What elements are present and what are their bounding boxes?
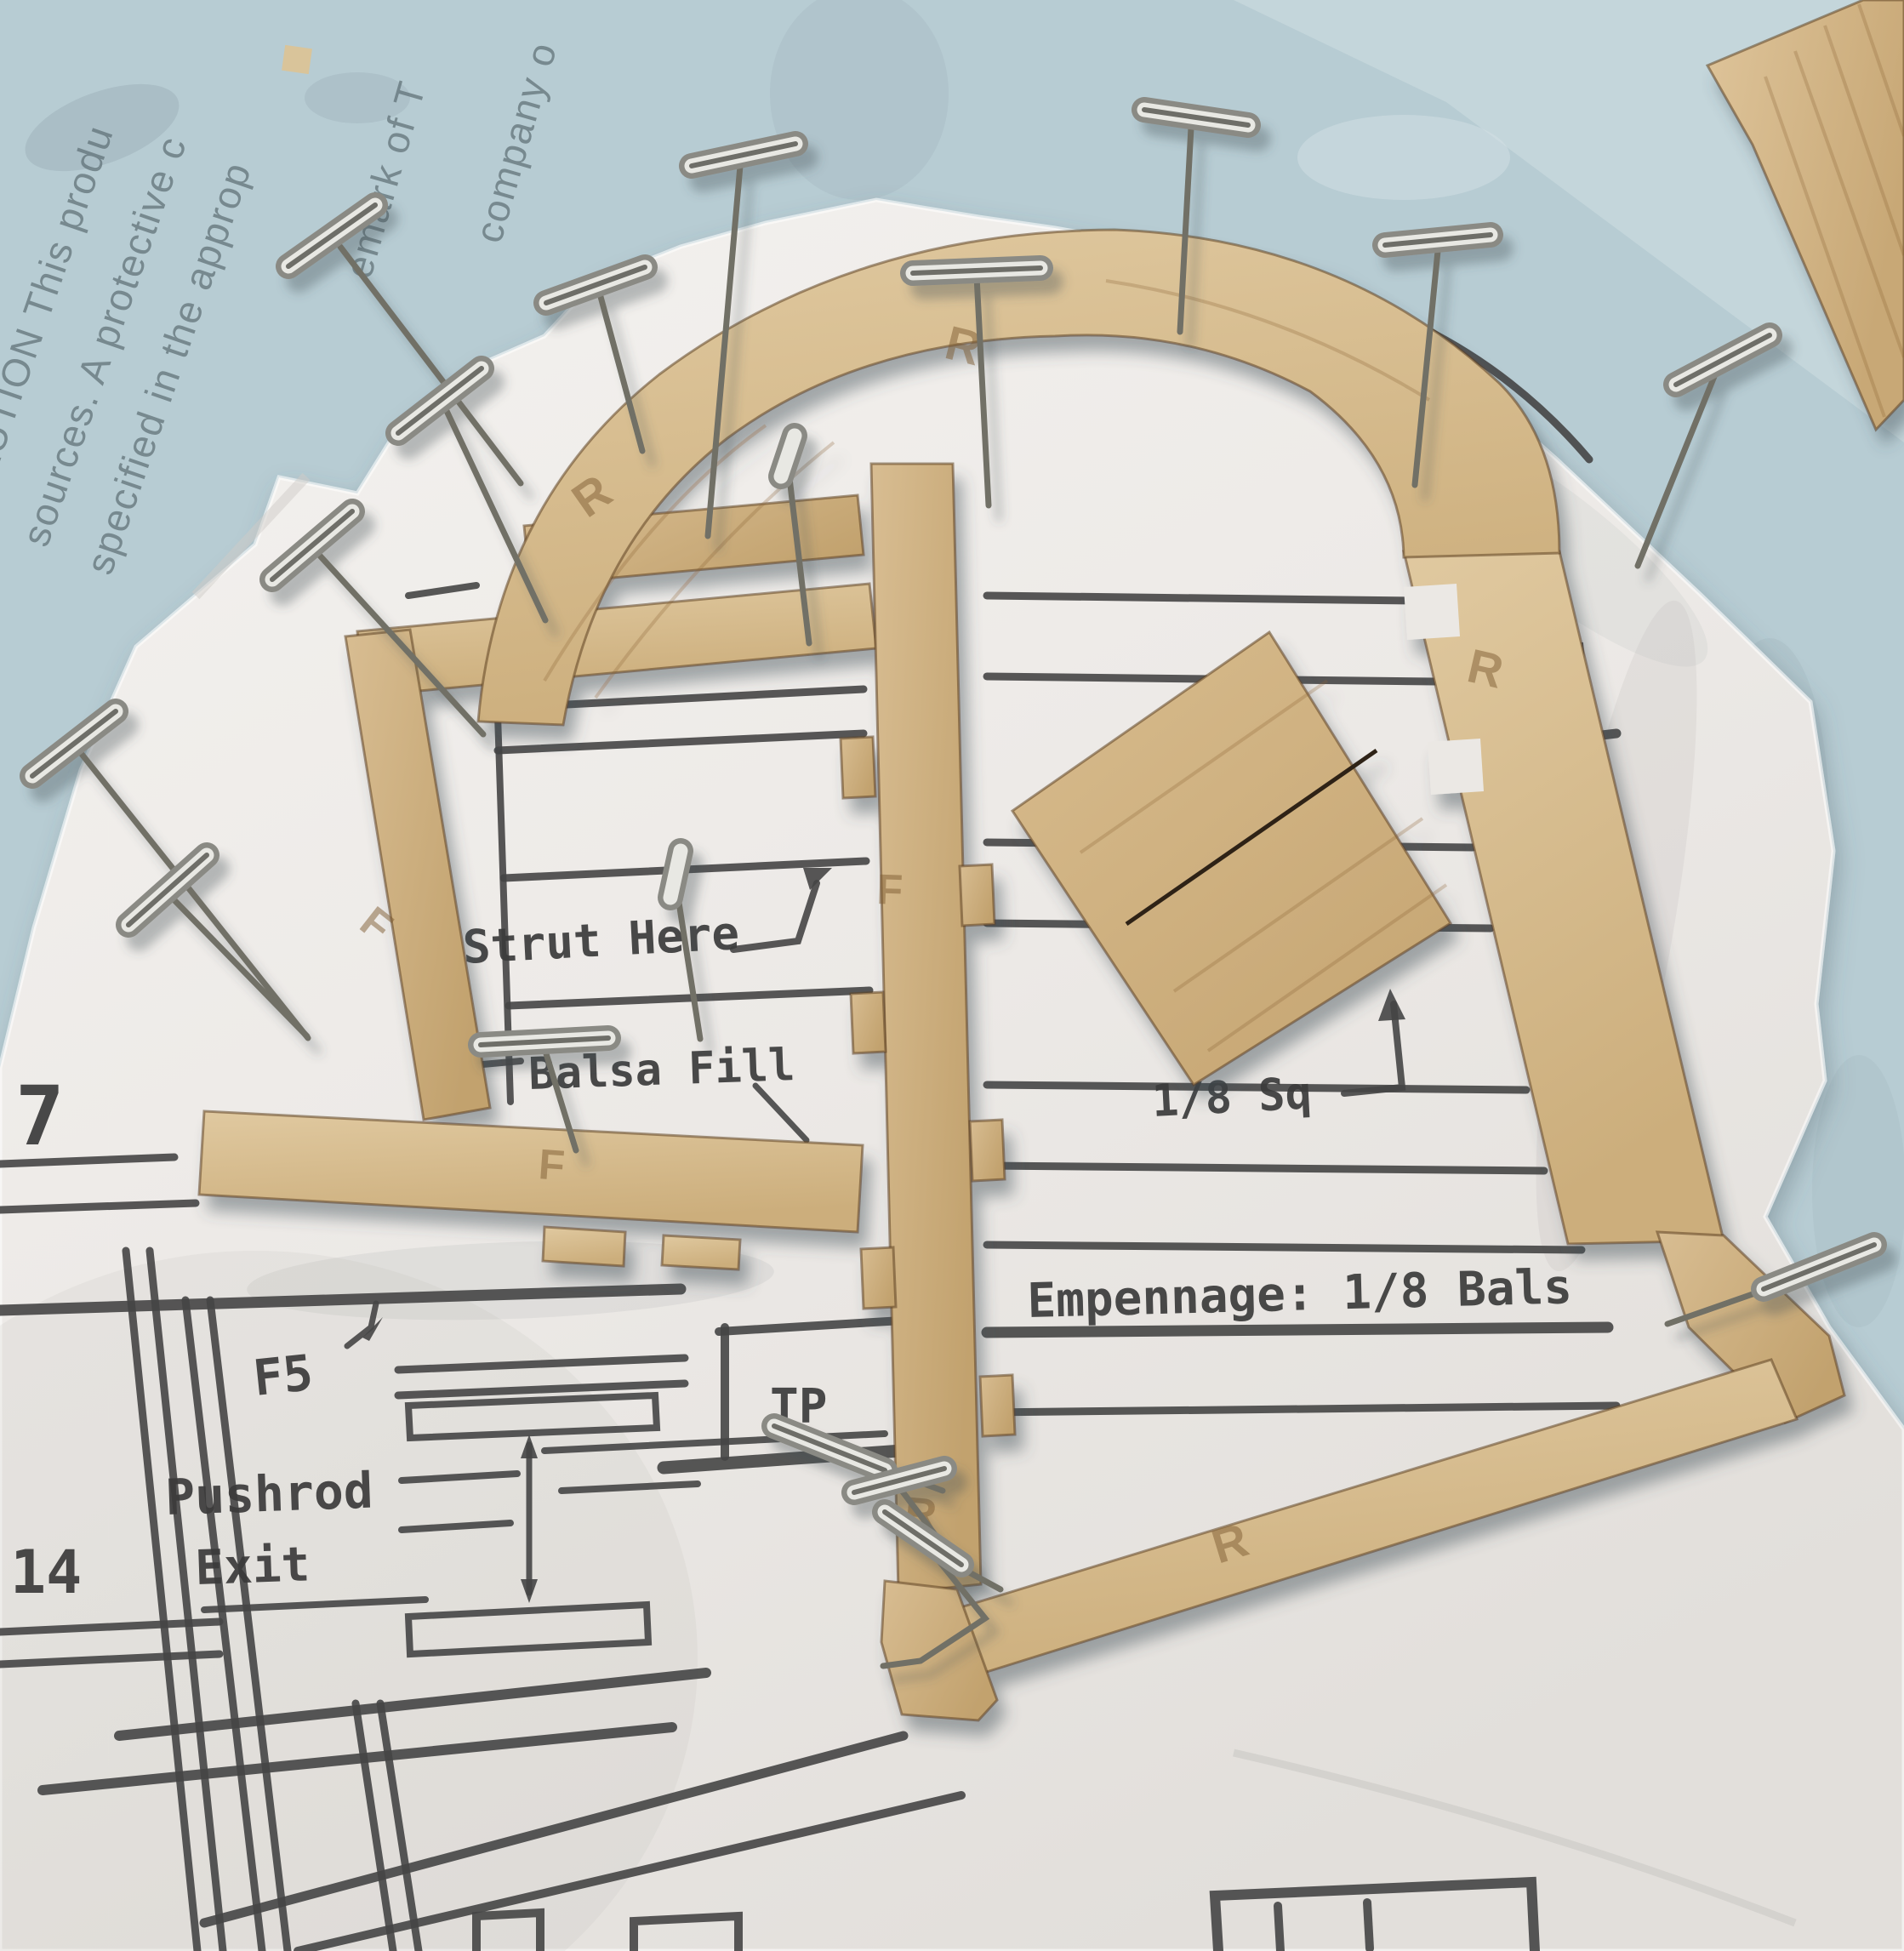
etched-f: F <box>537 1140 566 1189</box>
label-exit: Exit <box>194 1537 311 1596</box>
foam-speck <box>282 45 312 74</box>
spine-tab <box>960 864 995 926</box>
spine-tab <box>970 1120 1005 1181</box>
bottom-bar-tab <box>543 1227 625 1266</box>
spine-tab <box>851 992 886 1053</box>
label-one-eighth-sq: 1/8 Sq <box>1151 1068 1314 1127</box>
spine-tab <box>980 1375 1015 1436</box>
photo-canvas: CAUTION This produ sources. A protective… <box>0 0 1904 1951</box>
right-member-notch <box>1404 584 1460 640</box>
etched-f: F <box>876 865 904 914</box>
label-station-7: 7 <box>15 1069 65 1164</box>
label-station-14: 14 <box>10 1537 82 1607</box>
label-pushrod: Pushrod <box>164 1462 374 1526</box>
workbench-photo: CAUTION This produ sources. A protective… <box>0 0 1904 1951</box>
spine-tab <box>841 737 875 798</box>
label-f5: F5 <box>250 1343 316 1407</box>
right-member-notch <box>1428 739 1484 795</box>
spine-tab <box>861 1247 896 1309</box>
bottom-bar-tab <box>662 1235 740 1269</box>
